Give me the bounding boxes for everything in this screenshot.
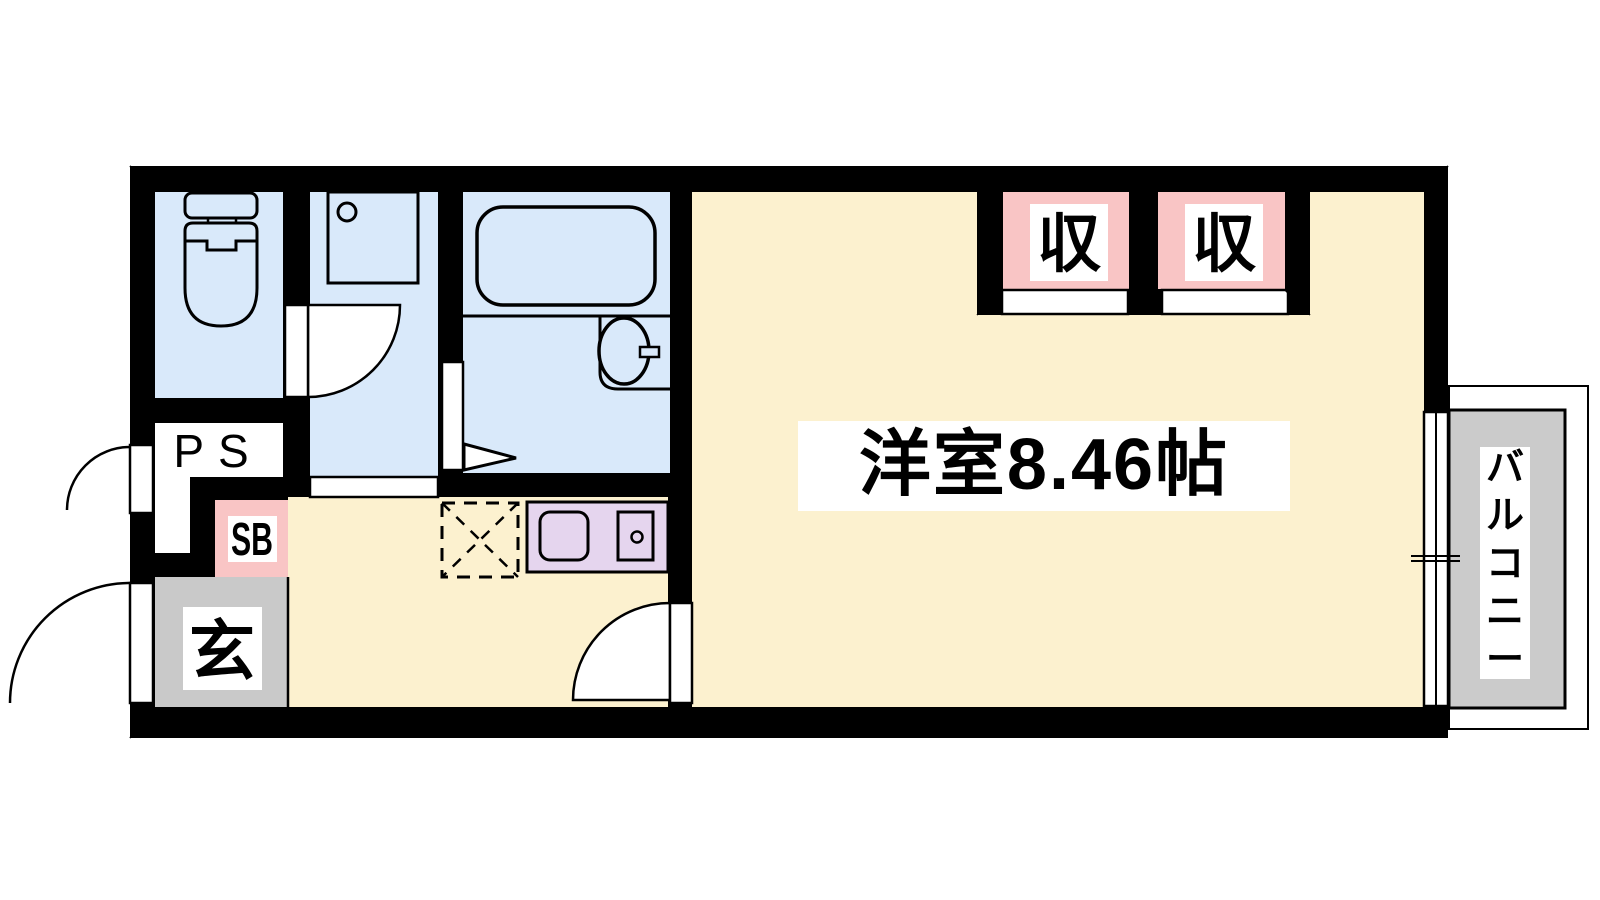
closet-2-sliding-door [1162,290,1288,314]
bath-faucet [640,347,659,357]
bathtub [477,207,655,305]
toilet-fixture [185,193,257,326]
kitchen-sink [540,512,588,560]
ps-door-leaf [130,445,153,513]
floor-plan-svg: バルコニー 収 収 PS SB 玄 [0,0,1600,900]
entrance-label: 玄 [189,614,255,688]
closet-2-label: 収 [1192,208,1256,280]
shoe-box-label: SB [231,513,273,565]
washroom-door-leaf [285,305,308,397]
stove-burner [632,532,643,543]
main-room-label: 洋室8.46帖 [859,425,1229,505]
entrance-door-leaf [130,583,153,703]
closet-1-label: 収 [1037,208,1101,280]
balcony-label: バルコニー [1486,447,1524,681]
kitchen-door-leaf [670,603,692,703]
floor-plan-page: バルコニー 収 収 PS SB 玄 [0,0,1600,900]
washroom-entry-opening [310,477,438,497]
bathroom-door-leaf [442,362,463,470]
pipe-space-label: PS [173,425,262,477]
closet-1-sliding-door [1002,290,1128,314]
washroom-faucet [338,203,356,221]
